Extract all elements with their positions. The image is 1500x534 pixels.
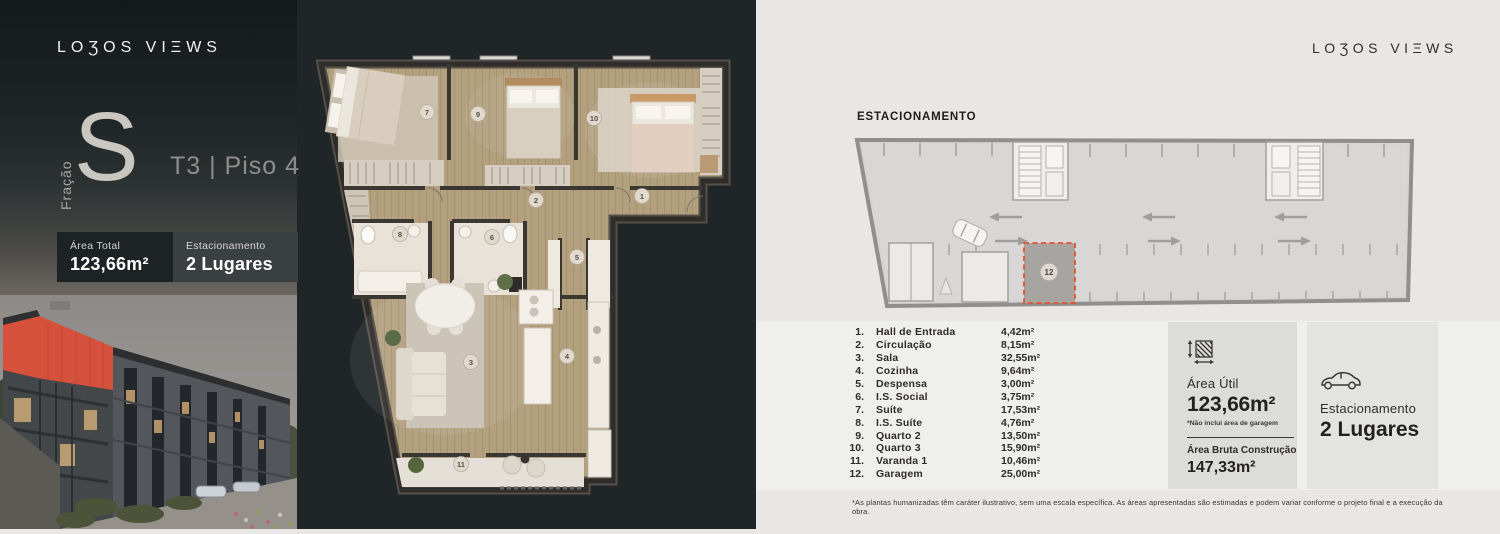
room-row: 4.Cozinha9,64m² [840, 365, 1082, 378]
bed-quarto2 [505, 78, 562, 158]
room-row: 1.Hall de Entrada4,42m² [840, 326, 1082, 339]
room-number: 11 [457, 460, 465, 469]
room-index: 11. [840, 455, 864, 467]
area-total-value: 123,66m² [70, 254, 173, 275]
stairwell-2 [1266, 142, 1323, 200]
room-area: 15,90m² [992, 442, 1082, 454]
area-util-value: 123,66m² [1187, 393, 1297, 417]
divider [1187, 437, 1294, 438]
gross-area-label: Área Bruta Construção [1187, 445, 1297, 456]
room-number: 3 [469, 358, 473, 367]
room-index: 12. [840, 468, 864, 480]
room-number: 1 [640, 192, 644, 201]
parking-badge-value: 2 Lugares [186, 254, 298, 275]
room-row: 2.Circulação8,15m² [840, 339, 1082, 352]
room-name: I.S. Suíte [864, 417, 992, 429]
room-name: Quarto 2 [864, 430, 992, 442]
room-name: Despensa [864, 378, 992, 390]
typology-floor-label: T3 | Piso 4 [170, 152, 300, 181]
room-number: 6 [490, 233, 494, 242]
stairwell-1 [1013, 142, 1068, 200]
parking-badge: Estacionamento 2 Lugares [173, 232, 298, 282]
area-total-badge: Área Total 123,66m² [57, 232, 173, 282]
parking-plan-title: ESTACIONAMENTO [857, 111, 976, 123]
room-index: 10. [840, 442, 864, 454]
room-area: 4,76m² [992, 417, 1082, 429]
fraction-letter: S [74, 98, 139, 195]
room-name: Quarto 3 [864, 442, 992, 454]
parking-info-value: 2 Lugares [1320, 418, 1438, 442]
parking-info-label: Estacionamento [1320, 401, 1438, 416]
room-name: Varanda 1 [864, 455, 992, 467]
area-total-label: Área Total [70, 240, 173, 252]
building-photo [0, 295, 297, 529]
room-index: 2. [840, 339, 864, 351]
room-index: 6. [840, 391, 864, 403]
car-icon [1320, 370, 1362, 391]
room-area: 4,42m² [992, 326, 1082, 338]
room-area: 3,00m² [992, 378, 1082, 390]
room-number: 10 [590, 114, 598, 123]
veranda [396, 455, 584, 489]
room-index: 1. [840, 326, 864, 338]
brand-logo-left: LOƷOS VIΞWS [57, 39, 222, 57]
room-row: 12.Garagem25,00m² [840, 468, 1082, 481]
room-area: 8,15m² [992, 339, 1082, 351]
area-util-note: *Não inclui área de garagem [1187, 420, 1297, 427]
room-row: 7.Suíte17,53m² [840, 404, 1082, 417]
area-icon [1187, 340, 1215, 367]
room-area: 13,50m² [992, 430, 1082, 442]
room-name: Circulação [864, 339, 992, 351]
details-band: 1.Hall de Entrada4,42m² 2.Circulação8,15… [756, 321, 1500, 490]
room-area: 25,00m² [992, 468, 1082, 480]
brochure-page: LOƷOS VIΞWS Fração S T3 | Piso 4 Área To… [0, 0, 1500, 534]
parking-plan: 12 [840, 128, 1440, 318]
room-number: 8 [398, 230, 402, 239]
room-row: 3.Sala32,55m² [840, 352, 1082, 365]
room-row: 10.Quarto 315,90m² [840, 442, 1082, 455]
room-index: 4. [840, 365, 864, 377]
area-util-box: Área Útil 123,66m² *Não inclui área de g… [1168, 322, 1297, 489]
summary-badges: Área Total 123,66m² Estacionamento 2 Lug… [57, 232, 298, 282]
room-row: 11.Varanda 110,46m² [840, 455, 1082, 468]
room-area: 32,55m² [992, 352, 1082, 364]
dark-panel: LOƷOS VIΞWS Fração S T3 | Piso 4 Área To… [0, 0, 756, 529]
area-util-label: Área Útil [1187, 376, 1297, 391]
room-number: 9 [476, 110, 480, 119]
room-index: 7. [840, 404, 864, 416]
room-row: 6.I.S. Social3,75m² [840, 391, 1082, 404]
room-number: 5 [575, 253, 579, 262]
room-index: 3. [840, 352, 864, 364]
room-index: 9. [840, 430, 864, 442]
room-row: 5.Despensa3,00m² [840, 378, 1082, 391]
room-number: 2 [534, 196, 538, 205]
disclaimer-text: *As plantas humanizadas têm caráter ilus… [852, 498, 1452, 516]
room-name: Hall de Entrada [864, 326, 992, 338]
room-area: 17,53m² [992, 404, 1082, 416]
room-name: Cozinha [864, 365, 992, 377]
floor-plan: 1 2 3 4 5 6 7 8 9 10 11 [297, 0, 756, 529]
room-number: 7 [425, 108, 429, 117]
bed-suite [325, 65, 405, 145]
room-area: 10,46m² [992, 455, 1082, 467]
room-area: 9,64m² [992, 365, 1082, 377]
room-name: Garagem [864, 468, 992, 480]
room-area: 3,75m² [992, 391, 1082, 403]
room-row: 9.Quarto 213,50m² [840, 430, 1082, 443]
light-panel: LOƷOS VIΞWS ESTACIONAMENTO [756, 0, 1500, 534]
room-index: 8. [840, 417, 864, 429]
gross-area-value: 147,33m² [1187, 459, 1297, 477]
room-name: Sala [864, 352, 992, 364]
room-row: 8.I.S. Suíte4,76m² [840, 417, 1082, 430]
parking-space-number: 12 [1045, 268, 1054, 277]
room-name: I.S. Social [864, 391, 992, 403]
room-list: 1.Hall de Entrada4,42m² 2.Circulação8,15… [840, 326, 1082, 481]
parking-info-box: Estacionamento 2 Lugares [1307, 322, 1438, 489]
room-index: 5. [840, 378, 864, 390]
brand-logo-right: LOƷOS VIΞWS [1312, 40, 1458, 56]
parking-badge-label: Estacionamento [186, 240, 298, 252]
highlighted-parking-space: 12 [1024, 243, 1075, 303]
room-name: Suíte [864, 404, 992, 416]
